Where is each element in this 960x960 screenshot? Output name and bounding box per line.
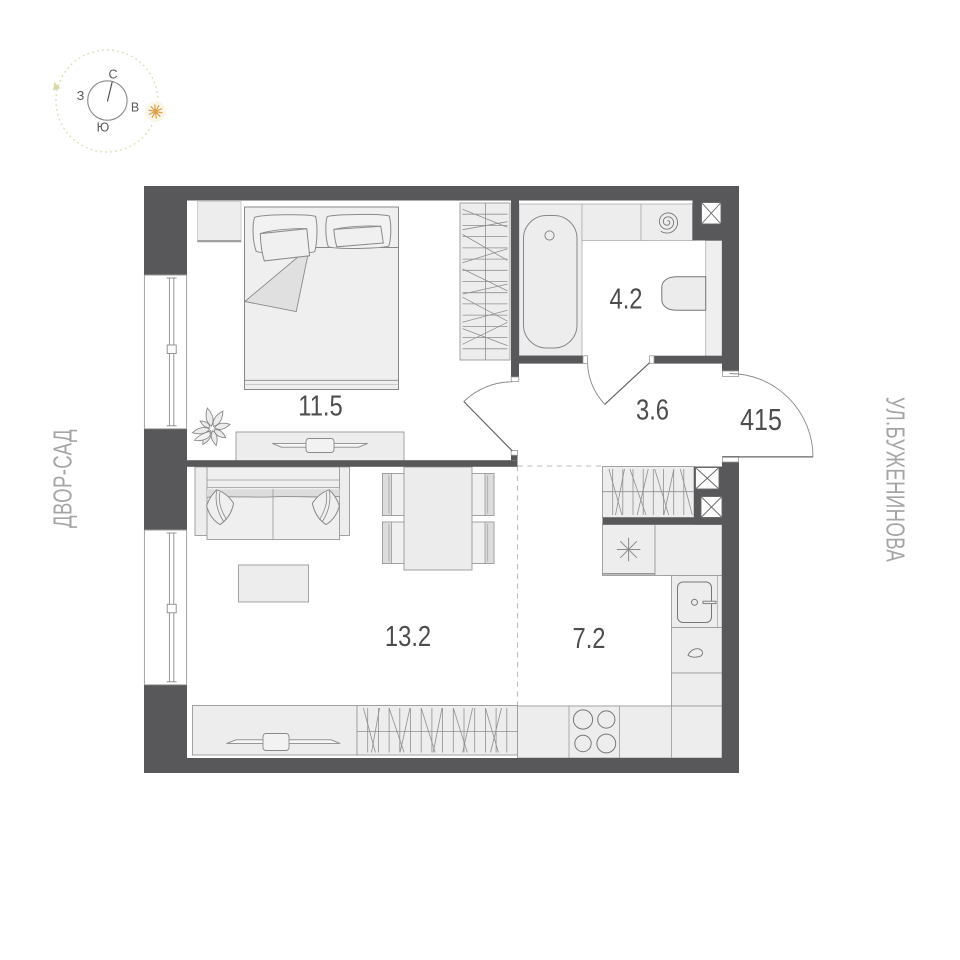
svg-text:Ю: Ю bbox=[97, 121, 110, 135]
svg-text:7.2: 7.2 bbox=[572, 622, 605, 655]
svg-text:В: В bbox=[131, 101, 139, 115]
svg-text:3.6: 3.6 bbox=[636, 393, 669, 426]
svg-text:415: 415 bbox=[740, 403, 782, 437]
svg-text:ДВОР-САД: ДВОР-САД bbox=[48, 429, 77, 528]
svg-text:З: З bbox=[77, 89, 85, 103]
svg-text:13.2: 13.2 bbox=[385, 620, 431, 653]
svg-text:С: С bbox=[108, 68, 117, 82]
svg-text:4.2: 4.2 bbox=[609, 282, 642, 315]
svg-text:УЛ.БУЖЕНИНОВА: УЛ.БУЖЕНИНОВА bbox=[881, 397, 910, 563]
svg-text:11.5: 11.5 bbox=[298, 389, 342, 422]
